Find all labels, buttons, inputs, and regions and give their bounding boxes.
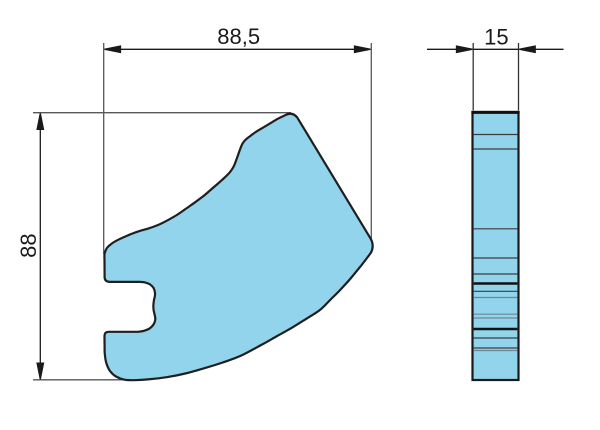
svg-text:88,5: 88,5 (217, 24, 260, 49)
svg-text:15: 15 (484, 25, 508, 50)
svg-text:88: 88 (16, 233, 41, 257)
